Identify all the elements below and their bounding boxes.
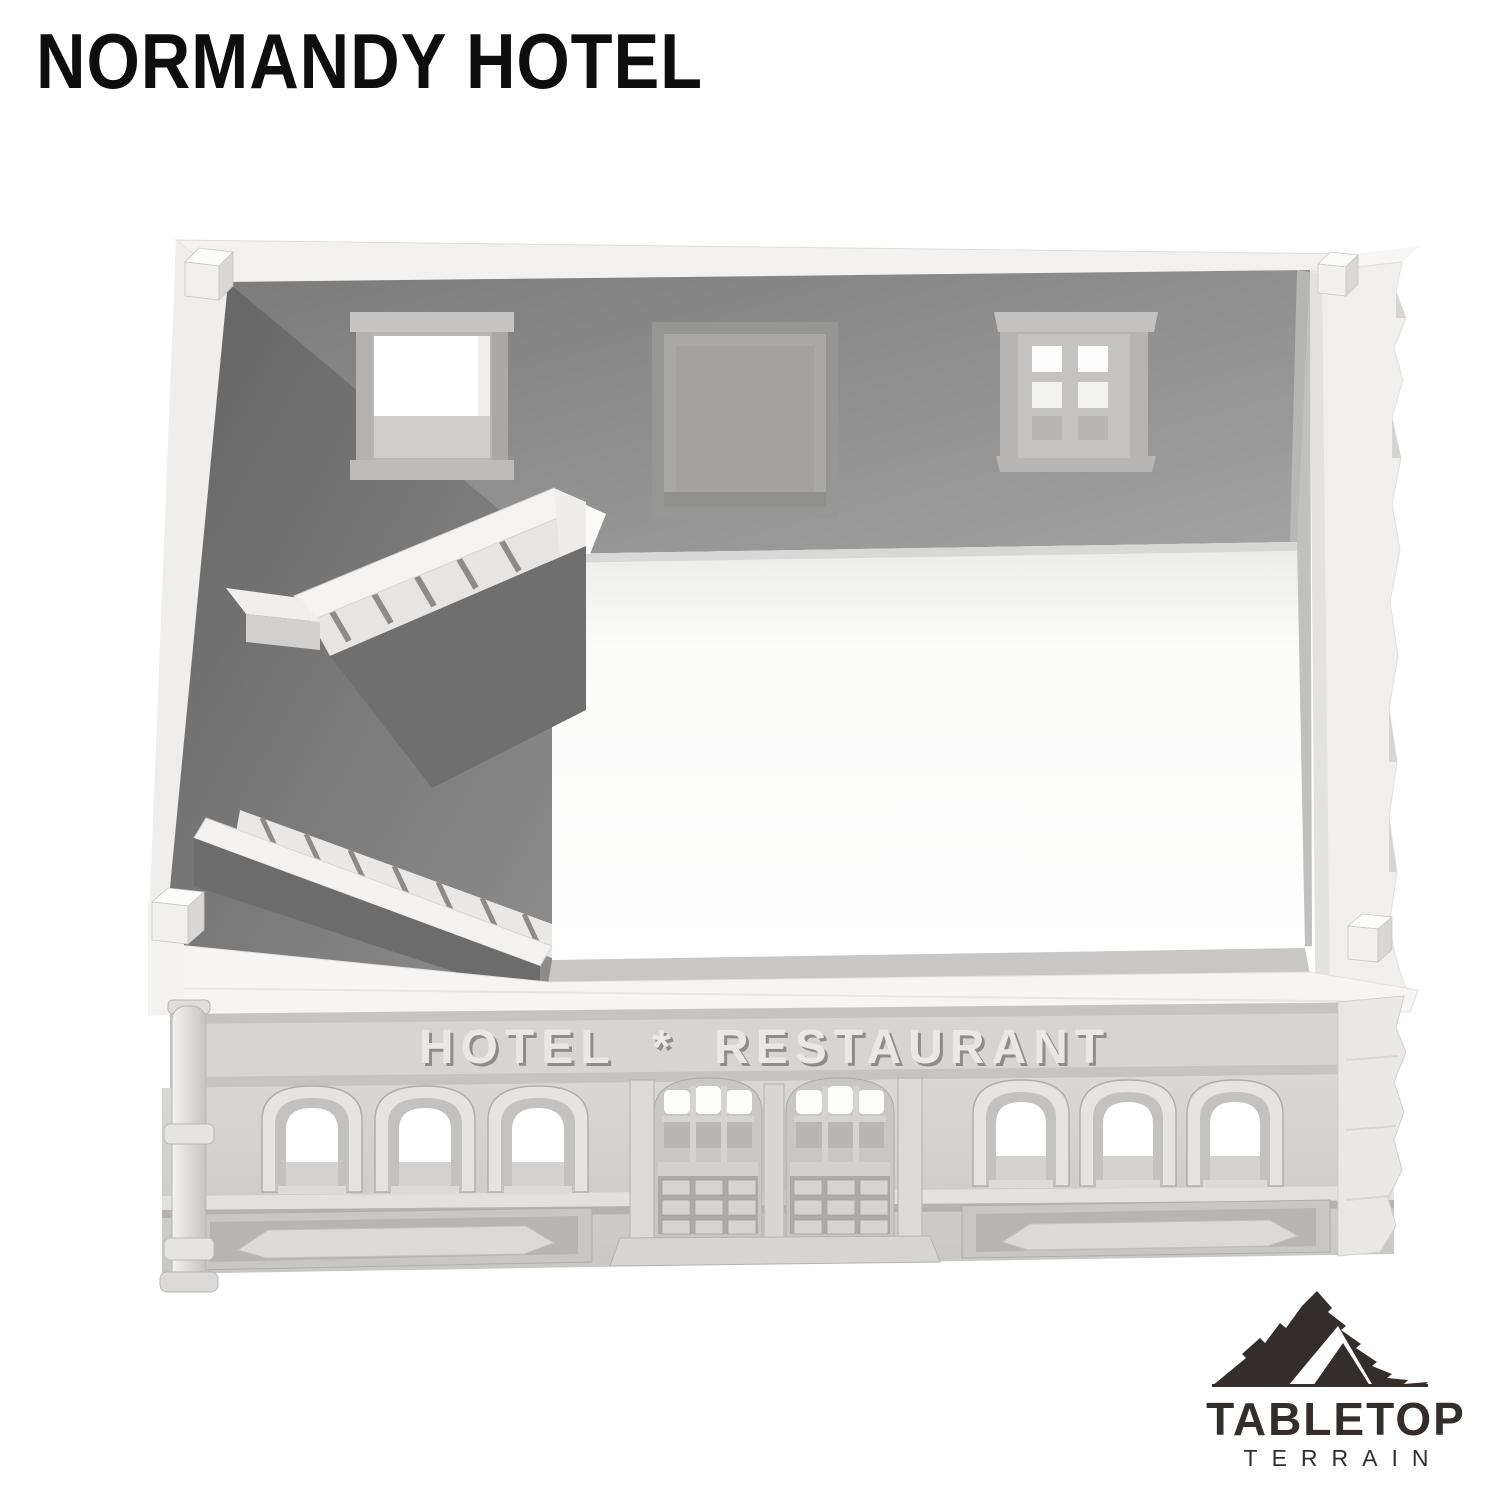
arched-window: [973, 1080, 1069, 1188]
left-sign-panel: [196, 1208, 592, 1270]
arched-window-group-right: [973, 1080, 1283, 1188]
building-model: HOTEL * RESTAURANT HOTEL * RESTAURANT: [0, 0, 1500, 1500]
door-recess: [652, 322, 838, 518]
floor: [552, 542, 1305, 960]
arched-window: [262, 1086, 362, 1194]
corner-peg: [1348, 914, 1392, 962]
sign-band: HOTEL * RESTAURANT HOTEL * RESTAURANT: [170, 1002, 1394, 1088]
right-sign-panel: [962, 1200, 1330, 1258]
corner-peg: [1318, 252, 1358, 296]
open-window: [350, 312, 514, 480]
arched-window: [375, 1086, 475, 1194]
paned-window: [994, 312, 1158, 472]
mountain-icon: [1180, 1280, 1492, 1388]
arched-window: [1187, 1080, 1283, 1188]
right-wall: [1310, 262, 1408, 1004]
tabletop-terrain-logo: TABLETOP TERRAIN: [1180, 1280, 1492, 1470]
door-lower-panels: [794, 1180, 888, 1234]
corner-peg: [152, 888, 204, 944]
storefront: HOTEL * RESTAURANT HOTEL * RESTAURANT: [160, 996, 1406, 1292]
hotel-restaurant-sign: HOTEL * RESTAURANT: [419, 1021, 1111, 1074]
arched-window: [488, 1086, 588, 1194]
door-lower-panels: [662, 1180, 756, 1234]
logo-wordmark: TABLETOP: [1180, 1396, 1492, 1442]
arched-window: [1080, 1080, 1176, 1188]
corner-peg: [185, 248, 233, 300]
door-leaf: [654, 1078, 762, 1238]
arched-window-group-left: [262, 1086, 588, 1194]
door-leaf: [786, 1078, 894, 1238]
entrance-doors: [610, 1078, 940, 1266]
door-step: [610, 1236, 940, 1266]
logo-subtitle: TERRAIN: [1180, 1447, 1492, 1470]
product-render: HOTEL * RESTAURANT HOTEL * RESTAURANT: [0, 0, 1500, 1500]
